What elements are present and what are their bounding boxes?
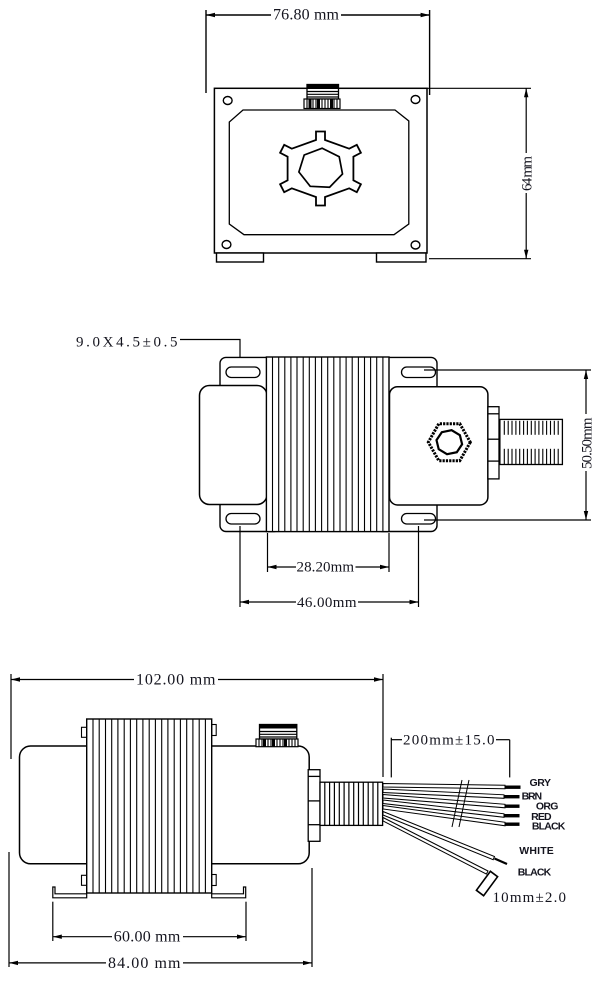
svg-text:GRY: GRY bbox=[530, 777, 553, 789]
svg-text:76.80 mm: 76.80 mm bbox=[273, 7, 340, 24]
svg-text:WHITE: WHITE bbox=[519, 845, 555, 857]
svg-text:64 mm: 64 mm bbox=[520, 155, 536, 191]
svg-text:BLACK: BLACK bbox=[518, 866, 553, 878]
svg-text:50.50mm: 50.50mm bbox=[580, 417, 596, 469]
svg-text:28.20mm: 28.20mm bbox=[297, 560, 355, 576]
svg-text:46.00mm: 46.00mm bbox=[297, 595, 357, 611]
svg-text:BLACK: BLACK bbox=[532, 820, 567, 832]
svg-text:102.00 mm: 102.00 mm bbox=[136, 672, 216, 689]
svg-text:60.00 mm: 60.00 mm bbox=[114, 929, 181, 946]
svg-text:84.00 mm: 84.00 mm bbox=[108, 955, 181, 972]
svg-text:200mm±15.0: 200mm±15.0 bbox=[403, 733, 495, 749]
svg-text:10mm±2.0: 10mm±2.0 bbox=[493, 890, 567, 906]
